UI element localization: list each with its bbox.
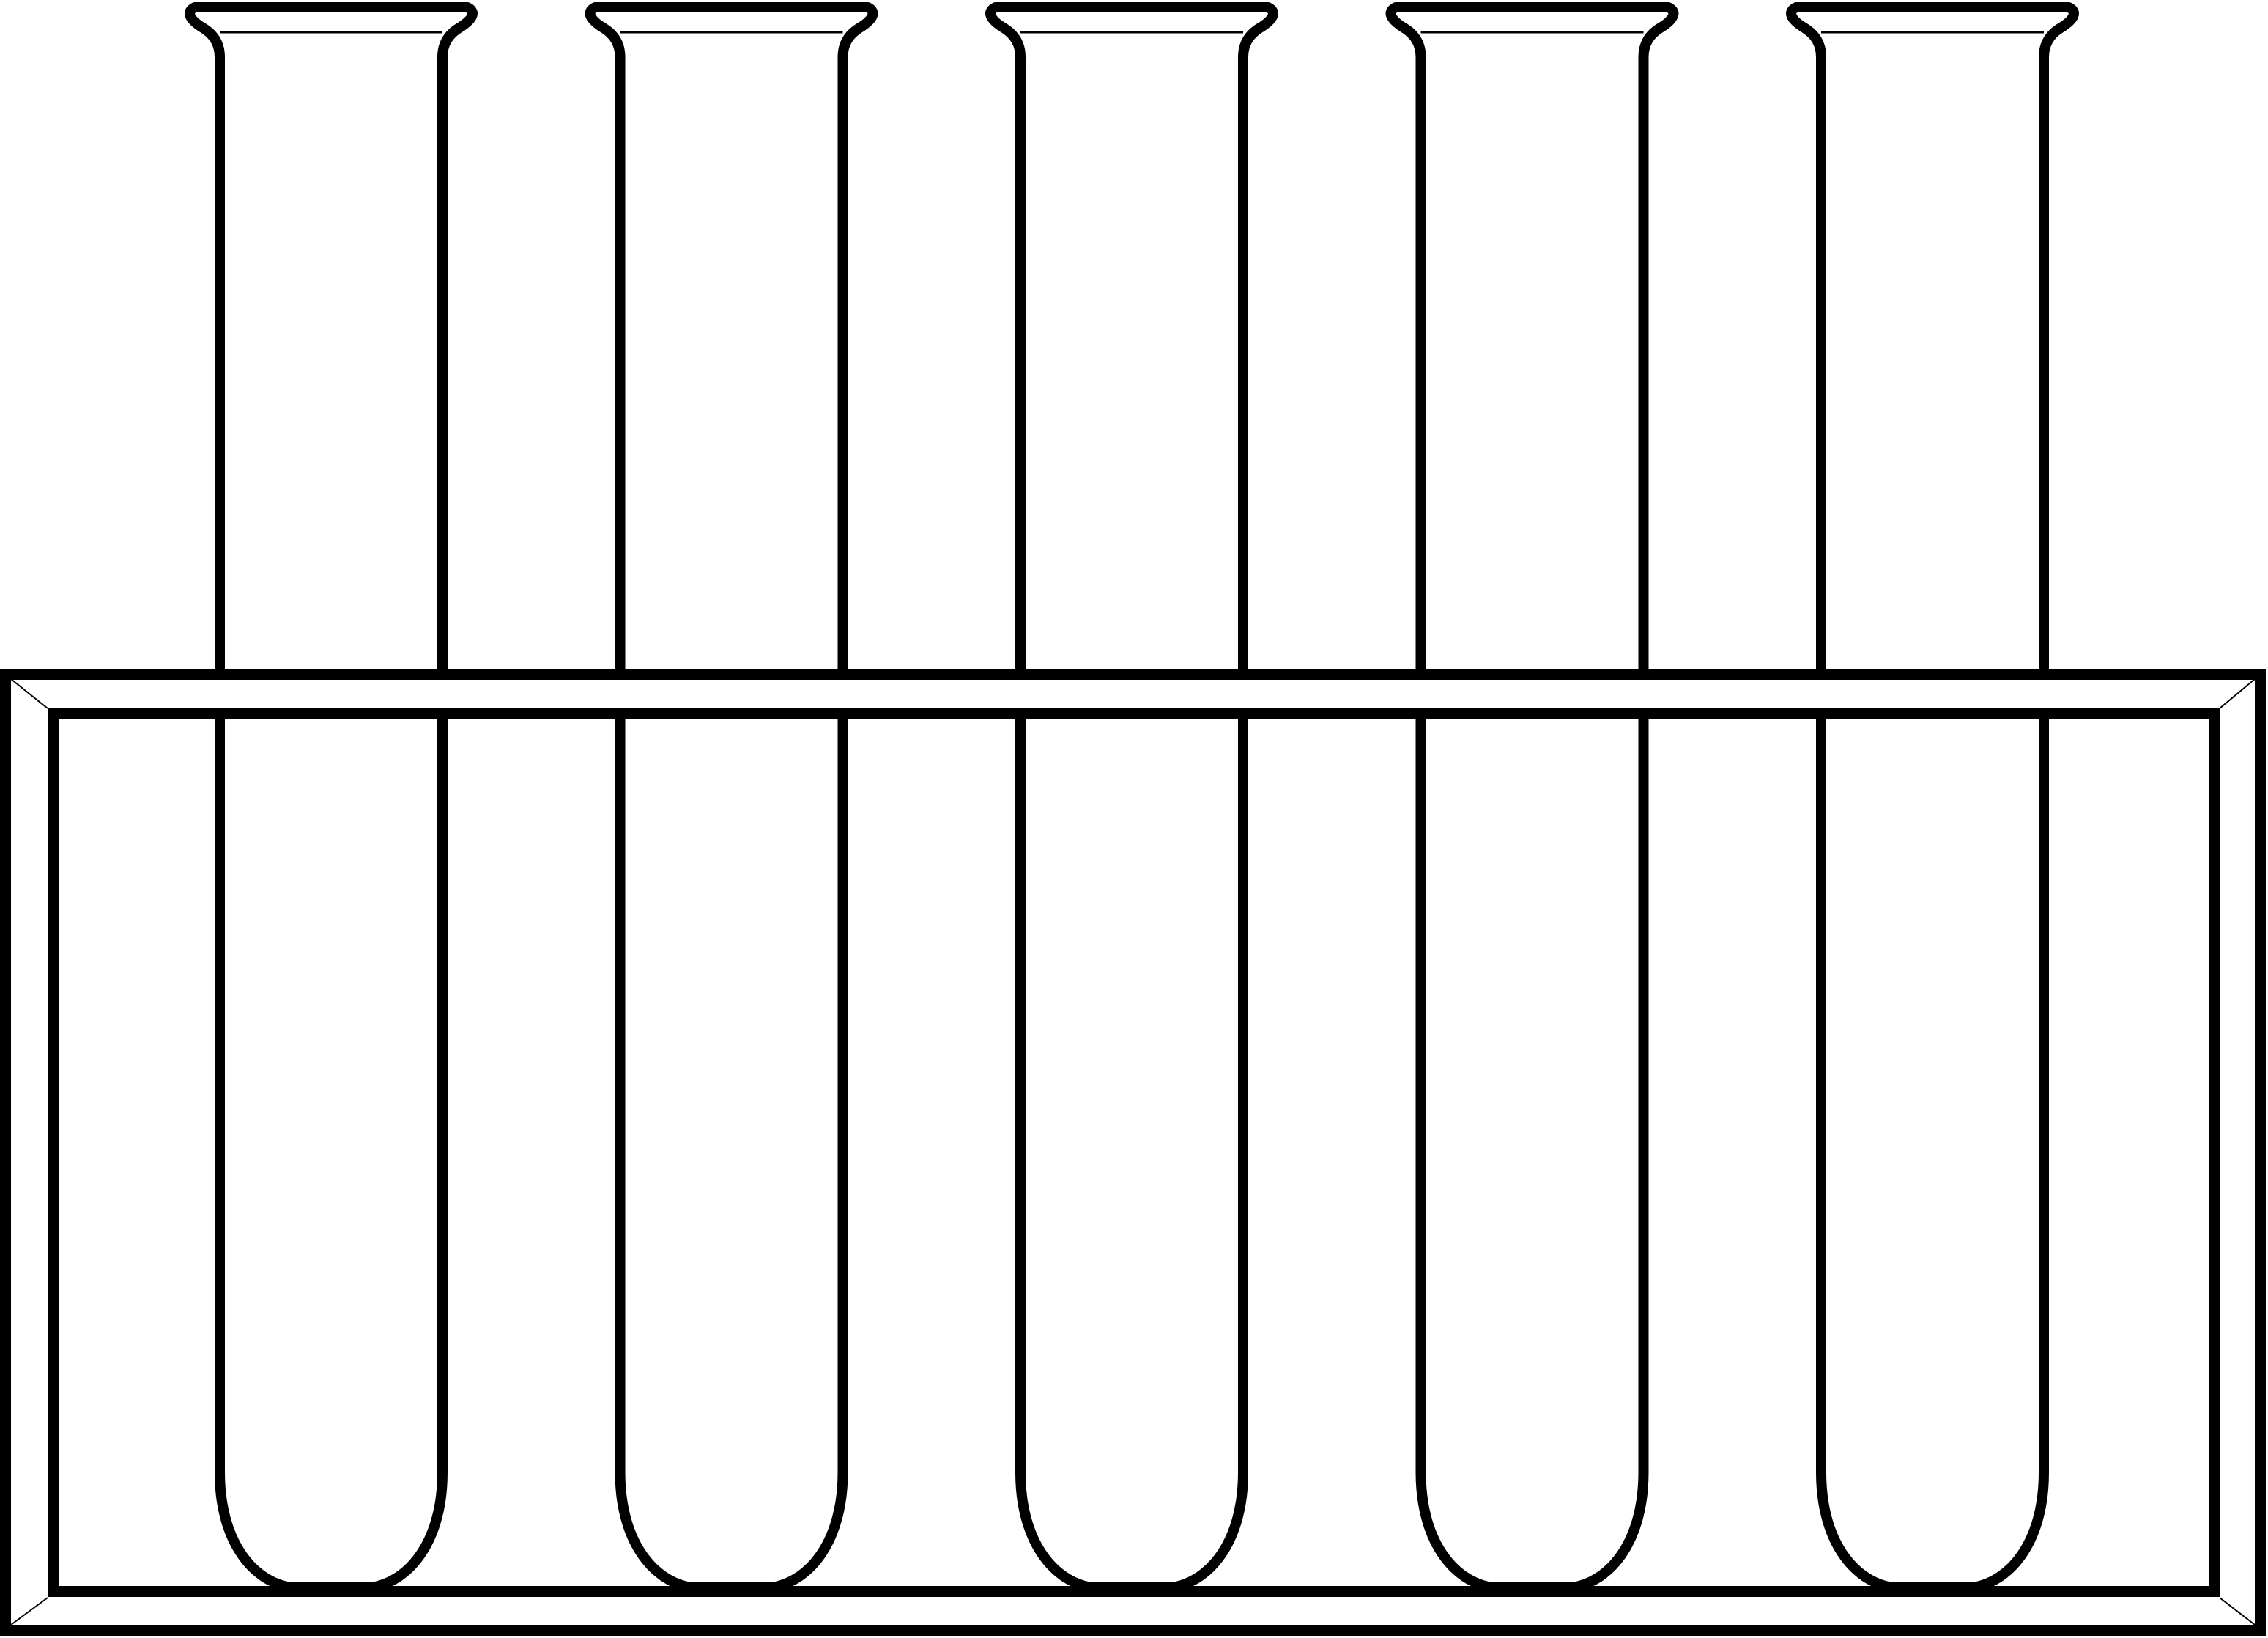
rack-inner-border	[53, 714, 2215, 1592]
rack-frame-face	[6, 675, 2261, 1631]
test-tube-2-outline	[590, 7, 873, 1587]
test-tube-1-outline	[190, 7, 472, 1587]
test-tube-3-outline	[990, 7, 1273, 1587]
test-tube-4-outline	[1391, 7, 1674, 1587]
drawing-canvas	[0, 0, 2268, 1638]
test-tube-5-outline	[1791, 7, 2074, 1587]
test-tube-rack-illustration	[0, 0, 2268, 1638]
rack-outer-border	[6, 675, 2261, 1631]
